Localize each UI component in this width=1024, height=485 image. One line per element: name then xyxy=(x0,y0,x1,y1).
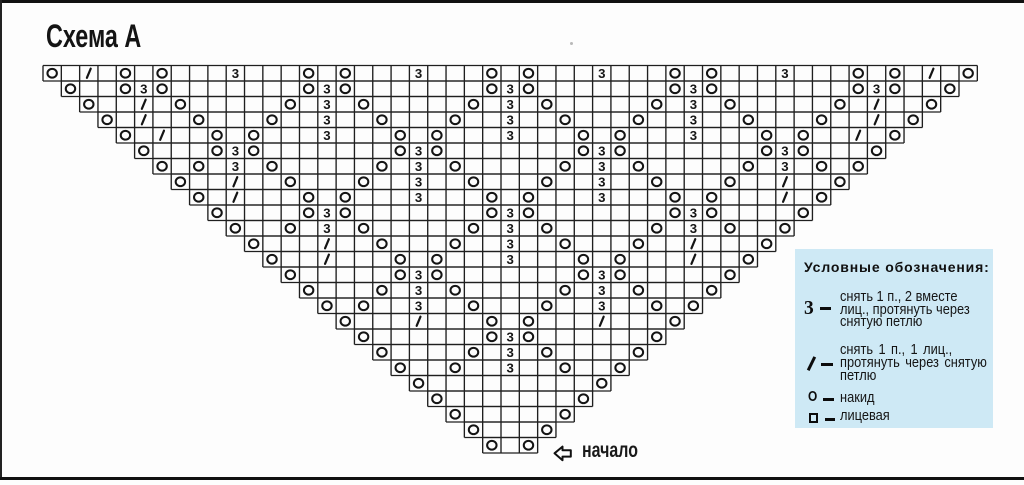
svg-text:3: 3 xyxy=(232,143,239,158)
svg-text:3: 3 xyxy=(506,252,513,267)
svg-text:3: 3 xyxy=(690,205,697,220)
svg-text:3: 3 xyxy=(323,128,330,143)
svg-text:3: 3 xyxy=(690,221,697,236)
svg-text:3: 3 xyxy=(598,298,605,313)
svg-text:3: 3 xyxy=(506,236,513,251)
svg-text:3: 3 xyxy=(781,143,788,158)
svg-text:3: 3 xyxy=(781,66,788,81)
svg-text:3: 3 xyxy=(323,81,330,96)
svg-text:3: 3 xyxy=(598,283,605,298)
svg-text:3: 3 xyxy=(140,81,147,96)
svg-text:3: 3 xyxy=(506,345,513,360)
svg-text:3: 3 xyxy=(506,128,513,143)
svg-text:3: 3 xyxy=(415,159,422,174)
svg-text:3: 3 xyxy=(598,174,605,189)
svg-text:3: 3 xyxy=(690,97,697,112)
svg-text:3: 3 xyxy=(415,283,422,298)
svg-text:3: 3 xyxy=(506,97,513,112)
svg-text:3: 3 xyxy=(415,66,422,81)
svg-text:3: 3 xyxy=(690,81,697,96)
svg-text:3: 3 xyxy=(506,360,513,375)
svg-text:3: 3 xyxy=(232,159,239,174)
svg-text:3: 3 xyxy=(506,205,513,220)
svg-text:3: 3 xyxy=(323,205,330,220)
svg-text:3: 3 xyxy=(415,190,422,205)
svg-text:3: 3 xyxy=(415,174,422,189)
svg-text:3: 3 xyxy=(323,112,330,127)
svg-text:3: 3 xyxy=(415,267,422,282)
svg-text:3: 3 xyxy=(598,267,605,282)
svg-text:3: 3 xyxy=(506,329,513,344)
svg-text:3: 3 xyxy=(873,81,880,96)
svg-text:3: 3 xyxy=(781,159,788,174)
svg-text:3: 3 xyxy=(415,298,422,313)
svg-text:3: 3 xyxy=(598,66,605,81)
svg-text:3: 3 xyxy=(506,221,513,236)
svg-text:3: 3 xyxy=(690,112,697,127)
svg-text:3: 3 xyxy=(323,97,330,112)
svg-text:3: 3 xyxy=(232,66,239,81)
svg-text:3: 3 xyxy=(598,190,605,205)
svg-text:3: 3 xyxy=(598,159,605,174)
svg-text:3: 3 xyxy=(506,81,513,96)
svg-text:3: 3 xyxy=(506,112,513,127)
svg-text:3: 3 xyxy=(323,221,330,236)
svg-text:3: 3 xyxy=(415,143,422,158)
svg-text:3: 3 xyxy=(690,128,697,143)
svg-text:3: 3 xyxy=(598,143,605,158)
